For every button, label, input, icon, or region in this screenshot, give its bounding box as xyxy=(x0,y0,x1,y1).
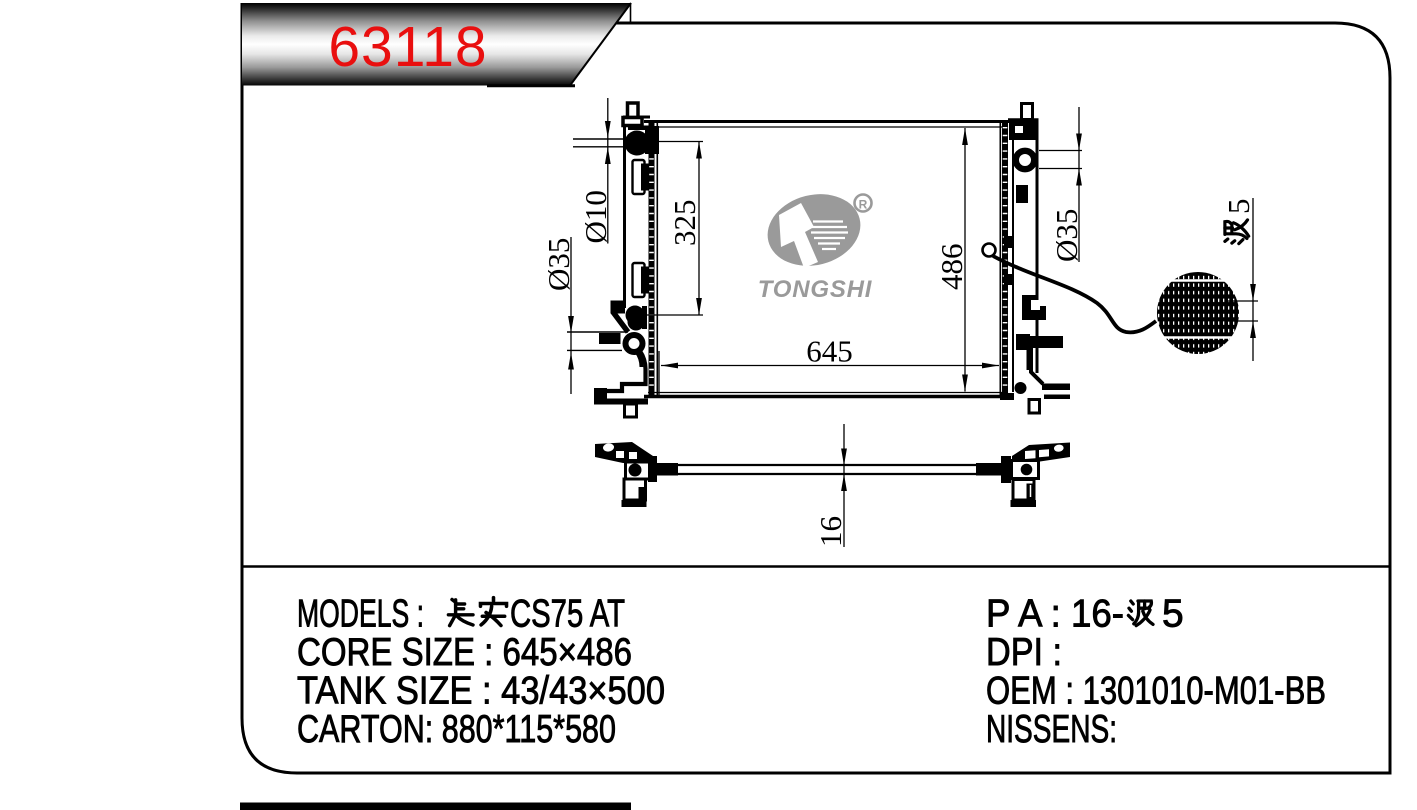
svg-text:486: 486 xyxy=(934,244,969,291)
svg-text:Ø35: Ø35 xyxy=(1049,209,1084,262)
svg-text:TONGSHI: TONGSHI xyxy=(758,276,873,303)
svg-text:R: R xyxy=(859,198,868,212)
svg-text:CARTON: 880*115*580: CARTON: 880*115*580 xyxy=(297,708,616,751)
svg-text:TANK SIZE : 43/43×500: TANK SIZE : 43/43×500 xyxy=(297,670,665,713)
svg-text:P A : 16-: P A : 16- xyxy=(986,593,1124,636)
svg-text:DPI :: DPI : xyxy=(986,631,1062,674)
svg-text:16: 16 xyxy=(813,516,848,547)
svg-text:645: 645 xyxy=(806,334,853,369)
svg-text:325: 325 xyxy=(667,200,702,247)
svg-text:OEM : 1301010-M01-BB: OEM : 1301010-M01-BB xyxy=(986,670,1326,713)
svg-text:CORE SIZE : 645×486: CORE SIZE : 645×486 xyxy=(297,631,632,674)
svg-text:5: 5 xyxy=(1221,199,1256,215)
svg-text:NISSENS:: NISSENS: xyxy=(986,708,1117,751)
svg-text:MODELS :: MODELS : xyxy=(297,593,424,636)
svg-text:Ø10: Ø10 xyxy=(578,190,613,243)
svg-text:Ø35: Ø35 xyxy=(541,238,576,291)
svg-text:CS75 AT: CS75 AT xyxy=(510,593,625,636)
svg-text:5: 5 xyxy=(1162,593,1184,636)
svg-text:63118: 63118 xyxy=(328,15,487,79)
